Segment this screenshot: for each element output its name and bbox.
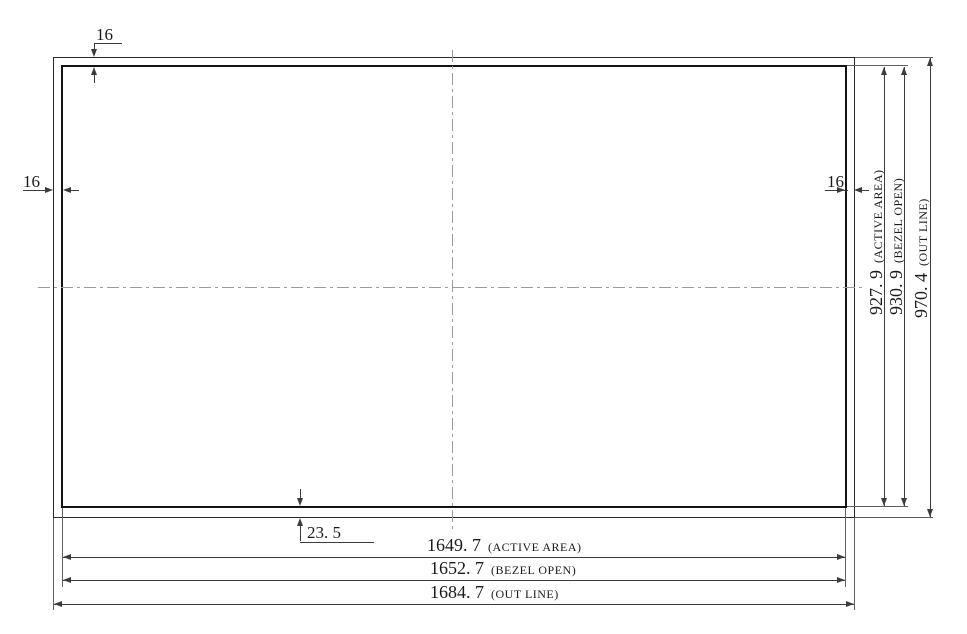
arrowhead — [297, 498, 303, 506]
dim-label-height-active-area: 927. 9(ACTIVE AREA) — [866, 170, 887, 316]
arrowhead — [881, 67, 887, 75]
extension-line — [847, 506, 908, 507]
arrowhead — [63, 187, 71, 193]
arrowhead — [54, 601, 62, 607]
leader-line — [94, 75, 95, 83]
arrowhead — [91, 49, 97, 57]
arrowhead — [63, 554, 71, 560]
leader-line — [830, 190, 837, 191]
arrowhead — [91, 67, 97, 75]
leader-line — [300, 489, 301, 498]
dim-unit-label: (ACTIVE AREA) — [488, 540, 582, 554]
dimension-line — [54, 604, 854, 605]
extension-line — [62, 508, 63, 587]
arrowhead — [927, 58, 933, 66]
dim-unit-label: (OUT LINE) — [916, 198, 930, 266]
dim-value: 1652. 7 — [430, 558, 484, 578]
leader-line — [94, 43, 122, 44]
dim-label-height-out-line: 970. 4(OUT LINE) — [911, 198, 932, 318]
dim-value: 1649. 7 — [427, 535, 481, 555]
arrowhead — [901, 67, 907, 75]
leader-line — [300, 542, 374, 543]
extension-line — [847, 65, 908, 66]
top-bezel-value: 16 — [96, 26, 113, 43]
extension-line — [845, 508, 846, 587]
dim-label-height-bezel-open: 930. 9(BEZEL OPEN) — [886, 178, 907, 315]
arrowhead — [901, 498, 907, 506]
arrowhead — [837, 187, 845, 193]
dim-label-width-active-area: 1649. 7(ACTIVE AREA) — [427, 536, 582, 556]
dim-label-width-bezel-open: 1652. 7(BEZEL OPEN) — [430, 559, 576, 579]
dim-label-width-out-line: 1684. 7(OUT LINE) — [430, 583, 559, 603]
arrowhead — [854, 187, 862, 193]
drawing-sheet: 16 16 16 23. 5 927. 9(ACTIVE AREA) 930. — [0, 0, 967, 634]
centerline-vertical — [452, 50, 453, 532]
dim-unit-label: (BEZEL OPEN) — [491, 563, 576, 577]
dim-value: 930. 9 — [886, 270, 906, 315]
arrowhead — [881, 498, 887, 506]
dimension-line — [63, 580, 845, 581]
extension-line — [854, 518, 855, 610]
left-bezel-value: 16 — [23, 173, 40, 190]
extension-line — [855, 57, 933, 58]
arrowhead — [297, 518, 303, 526]
bottom-bezel-value: 23. 5 — [307, 524, 341, 541]
arrowhead — [837, 554, 845, 560]
leader-line — [300, 526, 301, 541]
arrowhead — [846, 601, 854, 607]
dim-unit-label: (ACTIVE AREA) — [871, 170, 885, 264]
leader-line — [71, 190, 79, 191]
dim-value: 1684. 7 — [430, 582, 484, 602]
centerline-horizontal — [38, 287, 864, 288]
arrowhead — [927, 509, 933, 517]
dim-unit-label: (BEZEL OPEN) — [891, 178, 905, 263]
extension-line — [53, 518, 54, 610]
dim-unit-label: (OUT LINE) — [491, 587, 559, 601]
leader-line — [23, 190, 46, 191]
arrowhead — [63, 577, 71, 583]
extension-line — [855, 517, 933, 518]
dim-value: 970. 4 — [911, 273, 931, 318]
arrowhead — [45, 187, 53, 193]
dim-value: 927. 9 — [866, 270, 886, 315]
arrowhead — [837, 577, 845, 583]
